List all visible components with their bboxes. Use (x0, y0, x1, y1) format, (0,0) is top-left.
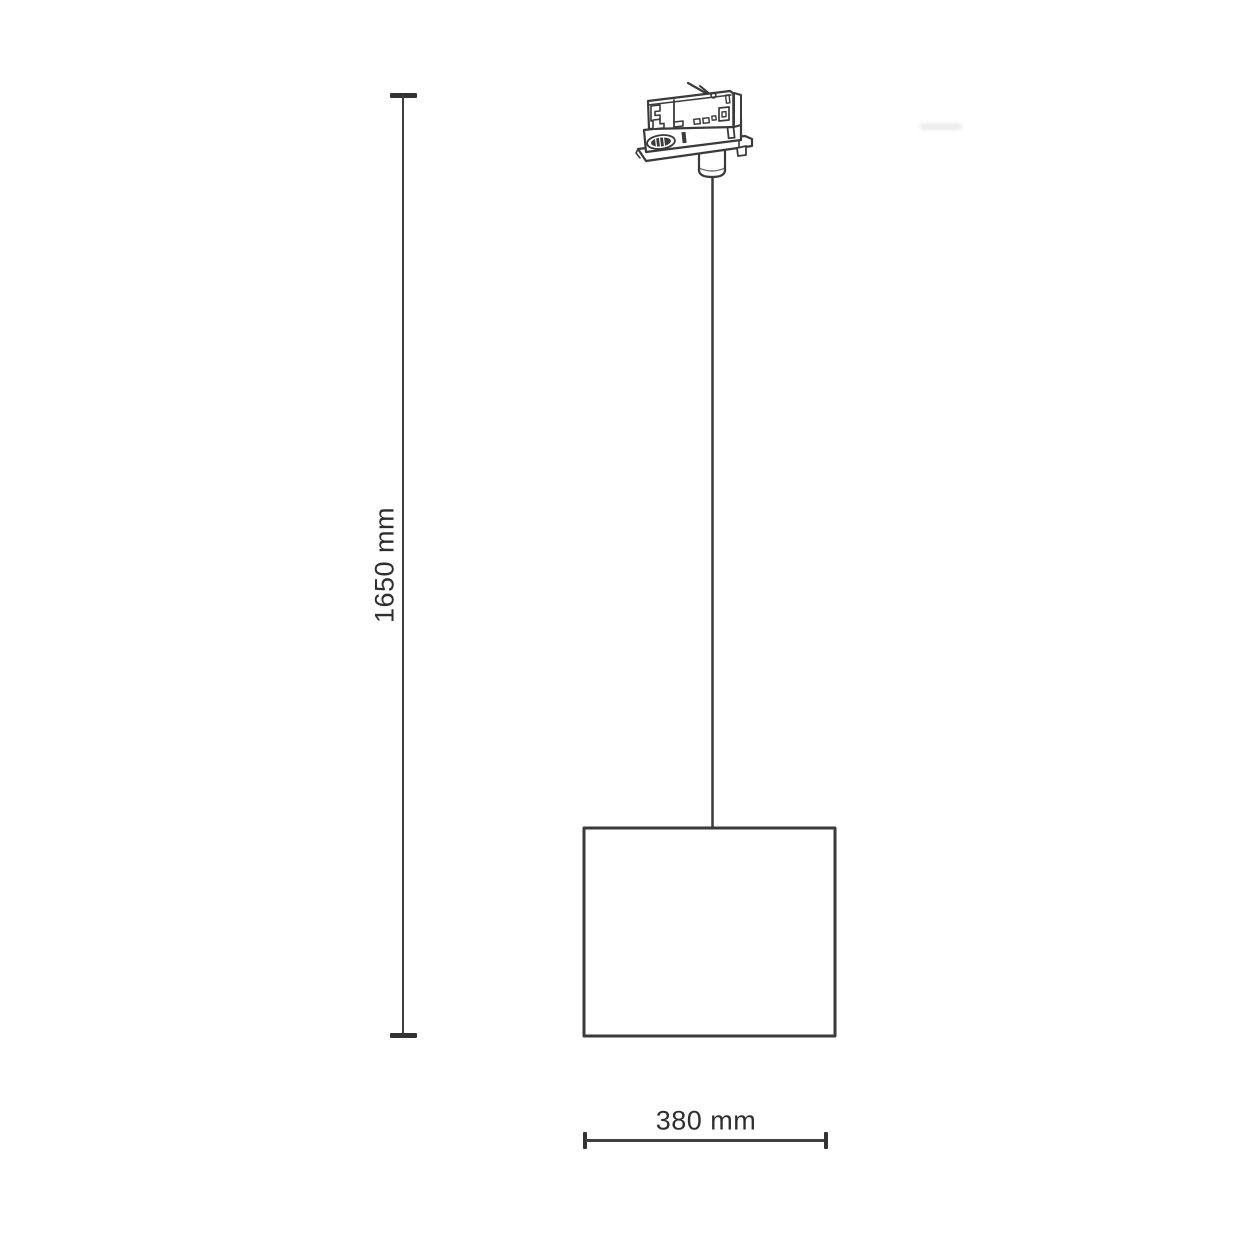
dimension-diagram: 1650 mm 380 mm (0, 0, 1240, 1240)
track-adapter-drawing (636, 83, 752, 177)
adapter-body (648, 91, 741, 129)
width-dimension-label: 380 mm (656, 1106, 757, 1137)
height-dimension-label: 1650 mm (370, 507, 401, 623)
width-dimension-tick-right (824, 1132, 828, 1149)
height-dimension-tick-bottom (390, 1033, 417, 1038)
lampshade-outline (584, 828, 835, 1036)
lamp-line-drawing (0, 0, 1240, 1240)
width-dimension-line (585, 1139, 826, 1142)
height-dimension-line (402, 95, 404, 1036)
